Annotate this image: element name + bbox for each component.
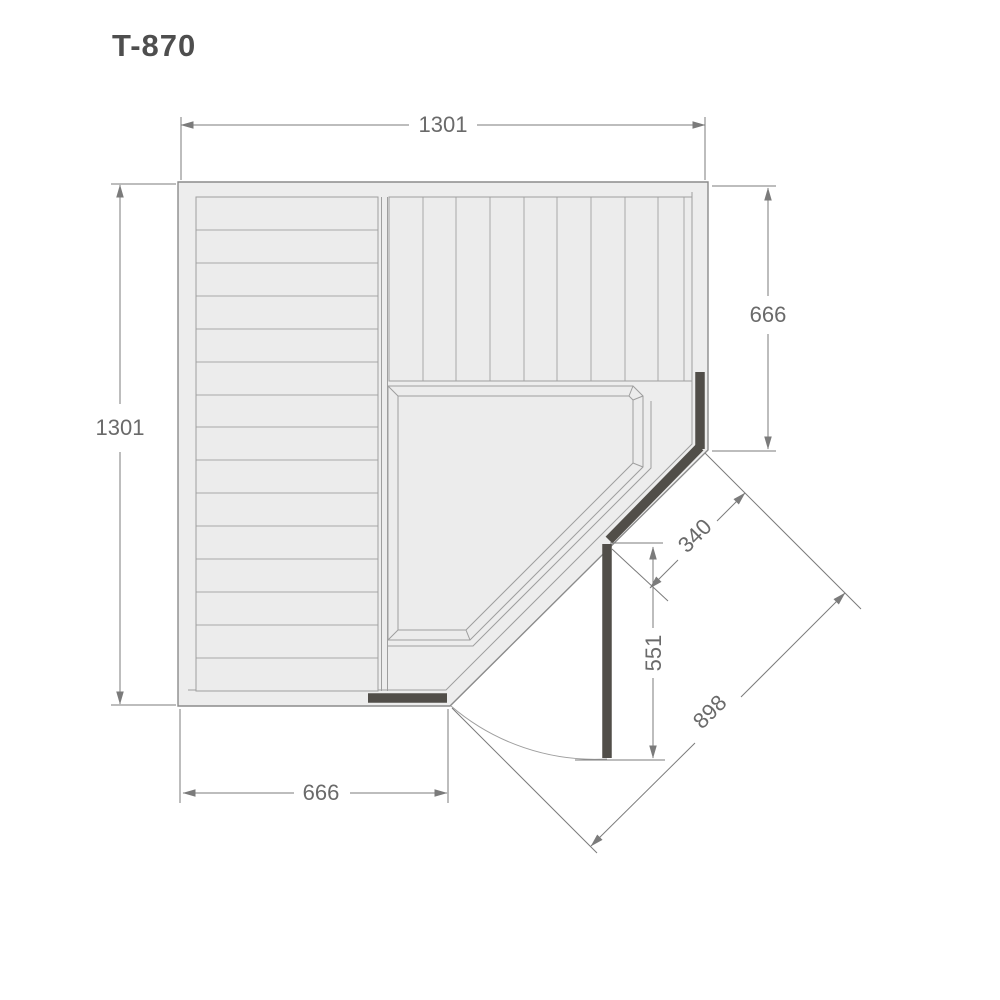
dim-label-bottom-width: 666 — [303, 780, 340, 805]
sauna-plan-page: T-870 — [0, 0, 1000, 1000]
dim-label-door-glass-width: 340 — [673, 514, 717, 558]
dim-label-left-height: 1301 — [96, 415, 145, 440]
door-swing-arc — [451, 706, 607, 759]
upper-bench — [389, 197, 692, 381]
dim-label-diagonal-span: 898 — [688, 690, 732, 734]
left-bench — [196, 197, 378, 691]
dim-label-right-height: 666 — [750, 302, 787, 327]
dim-left — [111, 184, 176, 705]
dim-label-top-width: 1301 — [419, 112, 468, 137]
dim-label-door-open-depth: 551 — [641, 635, 666, 672]
floor-plan-svg: 1301 1301 666 666 551 340 898 — [0, 0, 1000, 1000]
sauna-body — [178, 182, 708, 759]
